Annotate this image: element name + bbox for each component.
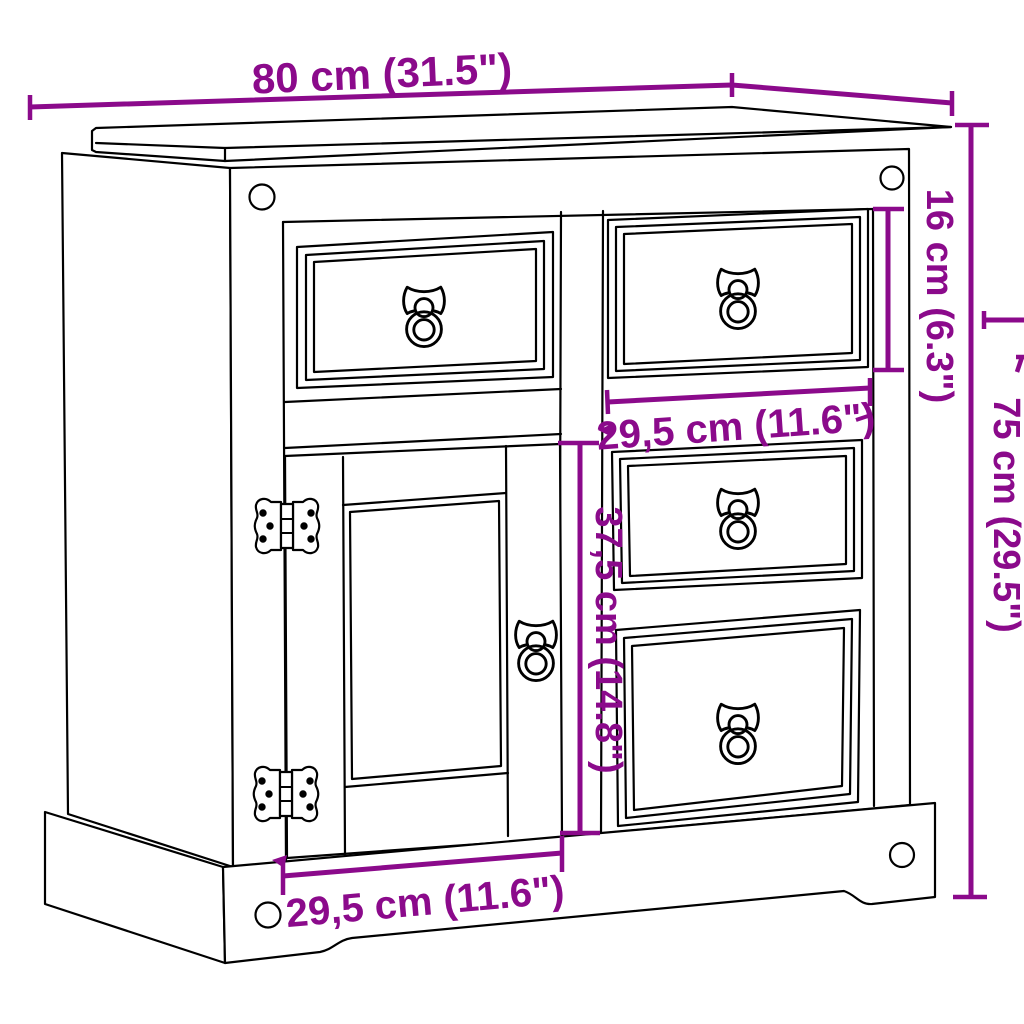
sideboard-dimension-diagram: 80 cm (31.5") 16 cm (6.3") 75 cm (29.5")… xyxy=(0,0,1024,1024)
drawer-height-label: 16 cm (6.3") xyxy=(918,189,960,403)
hinge-icon-bottom xyxy=(254,767,319,821)
dimension-diagram-canvas: 80 cm (31.5") 16 cm (6.3") 75 cm (29.5")… xyxy=(0,0,1024,1024)
screw-hole-top-left xyxy=(250,185,275,210)
screw-hole-bottom-left xyxy=(256,903,281,928)
hinge-icon-top xyxy=(255,499,320,553)
overall-height-label: 75 cm (29.5") xyxy=(985,397,1024,633)
door-height-label: 37,5 cm (14.8") xyxy=(587,506,629,773)
dim-cropped-edge-stub xyxy=(984,311,1024,372)
screw-hole-top-right xyxy=(881,167,904,190)
sideboard-drawing xyxy=(45,107,951,963)
screw-hole-bottom-right xyxy=(890,843,914,867)
side-panel xyxy=(62,153,233,867)
door xyxy=(285,444,562,858)
